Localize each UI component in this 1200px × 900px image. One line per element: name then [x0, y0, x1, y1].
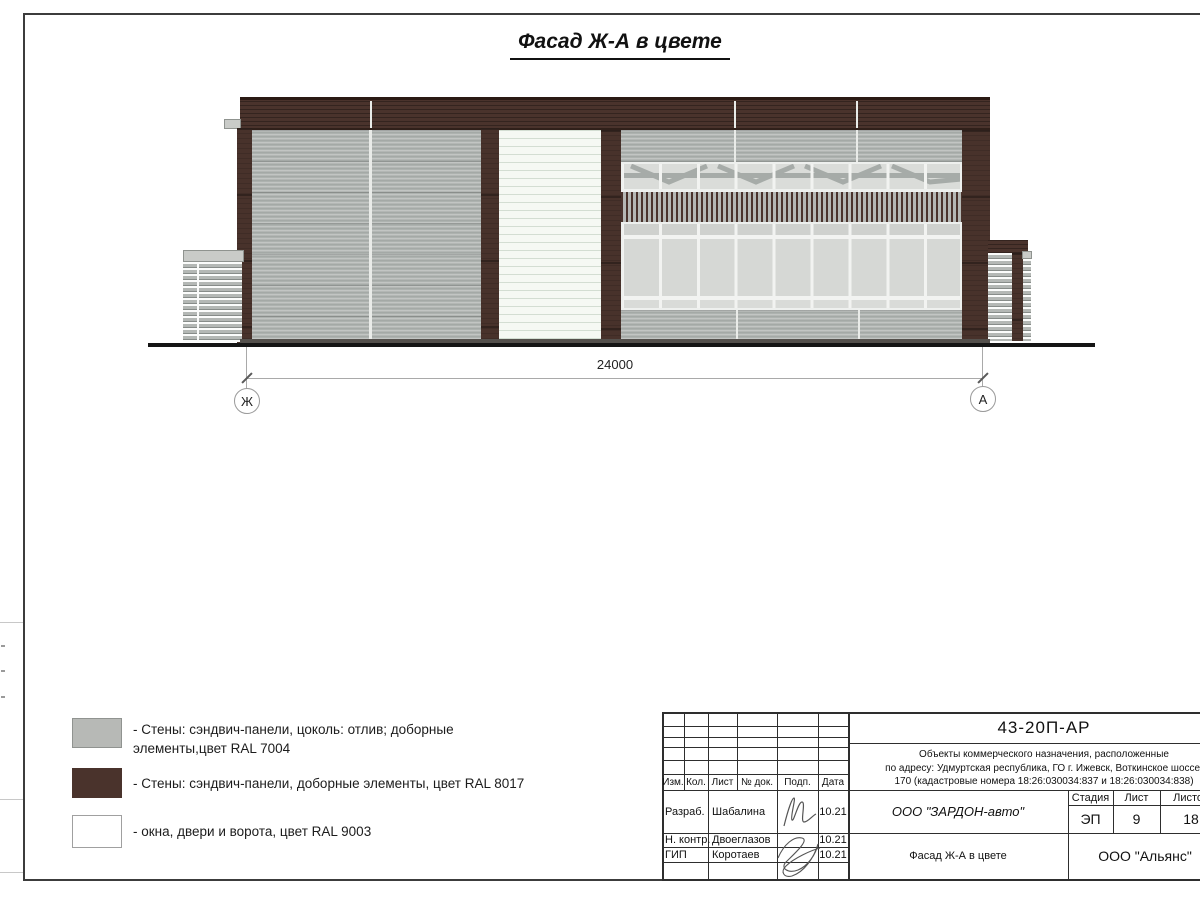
- legend: - Стены: сэндвич-панели, цоколь: отлив; …: [0, 700, 640, 870]
- legend-swatch-ral8017: [72, 768, 122, 798]
- tb-col-izm: Изм.: [662, 774, 684, 790]
- tb-role-razrab: Разраб.: [662, 790, 711, 833]
- tb-stage-header: Стадия: [1068, 790, 1113, 805]
- tb-hline: [662, 760, 848, 761]
- tb-name-shabalina: Шабалина: [709, 790, 780, 833]
- tb-col-ndok: № док.: [737, 774, 777, 790]
- tb-col-kol: Кол.: [684, 774, 708, 790]
- tb-descr-line1: Объекты коммерческого назначения, распол…: [848, 748, 1200, 762]
- tb-listov-value: 18: [1160, 805, 1200, 833]
- legend-item-ral7004: - Стены: сэндвич-панели, цоколь: отлив; …: [133, 720, 593, 758]
- tb-role-nkontr: Н. контр.: [662, 833, 711, 847]
- axis-label-left: Ж: [241, 394, 253, 409]
- margin-line: [0, 872, 23, 873]
- tb-border-bottom: [662, 879, 1200, 881]
- tb-sheet-name: Фасад Ж-А в цвете: [848, 833, 1068, 879]
- legend-line: - Стены: сэндвич-панели, цоколь: отлив; …: [133, 720, 593, 739]
- dimension-value: 24000: [565, 357, 665, 372]
- tb-date-r2: 10.21: [818, 833, 848, 847]
- tb-col-data: Дата: [818, 774, 848, 790]
- margin-mark: [1, 696, 5, 698]
- legend-swatch-ral9003: [72, 815, 122, 848]
- legend-swatch-ral7004: [72, 718, 122, 748]
- axis-label-right: А: [979, 392, 988, 407]
- tb-col-podp: Подп.: [777, 774, 818, 790]
- tb-name-korotaev: Коротаев: [709, 847, 780, 862]
- tb-descr-line3: 170 (кадастровые номера 18:26:030034:837…: [848, 775, 1200, 789]
- dimension-line: [247, 378, 983, 379]
- tb-date-r1: 10.21: [818, 790, 848, 833]
- tb-descr-line2: по адресу: Удмуртская республика, ГО г. …: [848, 762, 1200, 776]
- tb-col-list: Лист: [708, 774, 737, 790]
- tb-doc-code: 43-20П-АР: [848, 712, 1200, 743]
- signature-gip: [774, 828, 822, 880]
- tb-hline: [662, 726, 848, 727]
- axis-bubble-left: Ж: [234, 388, 260, 414]
- tb-role-gip: ГИП: [662, 847, 711, 862]
- legend-item-ral9003: - окна, двери и ворота, цвет RAL 9003: [133, 822, 633, 841]
- legend-line: - окна, двери и ворота, цвет RAL 9003: [133, 822, 633, 841]
- tb-client: ООО "ЗАРДОН-авто": [848, 790, 1068, 833]
- drawing-sheet: Фасад Ж-А в цвете: [0, 0, 1200, 900]
- tb-date-r3: 10.21: [818, 847, 848, 862]
- margin-mark: [1, 645, 5, 647]
- tb-project-description: Объекты коммерческого назначения, распол…: [848, 748, 1200, 790]
- title-block: Изм. Кол. Лист № док. Подп. Дата Разраб.…: [662, 712, 1200, 881]
- tb-stage-value: ЭП: [1068, 805, 1113, 833]
- tb-hline: [848, 743, 1200, 744]
- tb-name-dvoeglazov: Двоеглазов: [709, 833, 780, 847]
- tb-list-value: 9: [1113, 805, 1160, 833]
- margin-mark: [1, 670, 5, 672]
- tb-listov-header: Листов: [1160, 790, 1200, 805]
- extension-line-left: [246, 347, 247, 393]
- legend-line: - Стены: сэндвич-панели, доборные элемен…: [133, 774, 633, 793]
- legend-line: элементы,цвет RAL 7004: [133, 739, 593, 758]
- legend-item-ral8017: - Стены: сэндвич-панели, доборные элемен…: [133, 774, 633, 793]
- tb-hline: [662, 747, 848, 748]
- dimension-group: 24000 Ж А: [0, 0, 1200, 440]
- margin-line: [0, 622, 23, 623]
- tb-hline: [662, 737, 848, 738]
- axis-bubble-right: А: [970, 386, 996, 412]
- tb-list-header: Лист: [1113, 790, 1160, 805]
- tb-company: ООО "Альянс": [1068, 833, 1200, 879]
